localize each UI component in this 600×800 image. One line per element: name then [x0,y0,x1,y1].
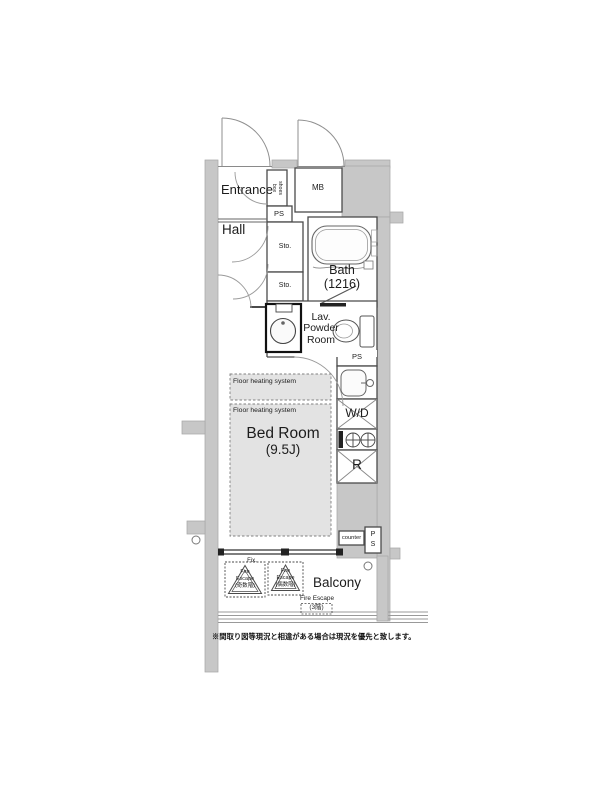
shoes-box-label: shoes box [271,181,283,195]
floorplan-page: Entrance Hall MB shoes box PS Sto. Sto. … [0,0,600,800]
pipe-space-kitchen-label: PS [352,353,362,361]
lavatory-label-line3: Room [307,335,335,346]
pipe-space-bottom-label: P S [371,530,376,550]
entrance-door-arc [222,118,270,166]
fire-escape-even-label: Fire Escape (偶数階) [276,568,296,589]
fix-window-label: Fix. [247,558,257,564]
washbasin-icon [266,304,301,352]
storage-lower-label: Sto. [279,282,291,289]
floor-heating-upper-label: Floor heating system [233,378,296,385]
bedroom-door-arc [218,275,251,308]
storage-upper-label: Sto. [279,243,291,250]
disclaimer-note: ※間取り図等現況と相違がある場合は現況を優先と致します。 [212,633,416,641]
entrance-label: Entrance [221,183,273,197]
counter-label: counter [342,535,361,541]
bedroom-size-label: (9.5J) [266,443,301,457]
right-protrusion-lower [390,548,400,559]
top-wall-mid [272,160,297,168]
floor-heating-lower-label: Floor heating system [233,407,296,414]
pipe-space-entrance-label: PS [274,210,284,218]
hall-label: Hall [222,223,245,237]
fire-escape-odd-label: Fire Escape (奇数階) [235,569,255,590]
bedroom-label: Bed Room [246,426,319,442]
washer-dryer-label: W/D [345,407,368,420]
balcony-label: Balcony [313,576,361,590]
fire-escape-3f-label-line1: Fire Escape [300,596,334,603]
balcony-right-wall [377,556,388,621]
fire-escape-3f-label-line2: (3階) [309,605,323,612]
meter-box-label: MB [312,184,324,192]
lavatory-label-line1: Lav. [311,312,330,323]
balcony-window [218,549,343,556]
floor-heating-lower-area [230,404,331,536]
balcony-edge-lines [218,612,428,623]
refrigerator-label: R [352,458,362,472]
left-protrusion-lower [187,521,205,534]
meter-box-door-arc [298,120,344,166]
lavatory-label-line2: Powder [303,323,339,334]
bath-door-threshold [320,303,346,307]
left-wall [205,160,218,672]
left-drain-circle [192,536,200,544]
right-protrusion-upper [390,212,403,223]
balcony-drain-circle [364,562,372,570]
left-protrusion-upper [182,421,205,434]
bath-label: Bath [329,264,355,277]
floorplan-drawing [0,0,600,800]
top-right-block [342,166,390,217]
bath-size-label: (1216) [324,278,360,291]
